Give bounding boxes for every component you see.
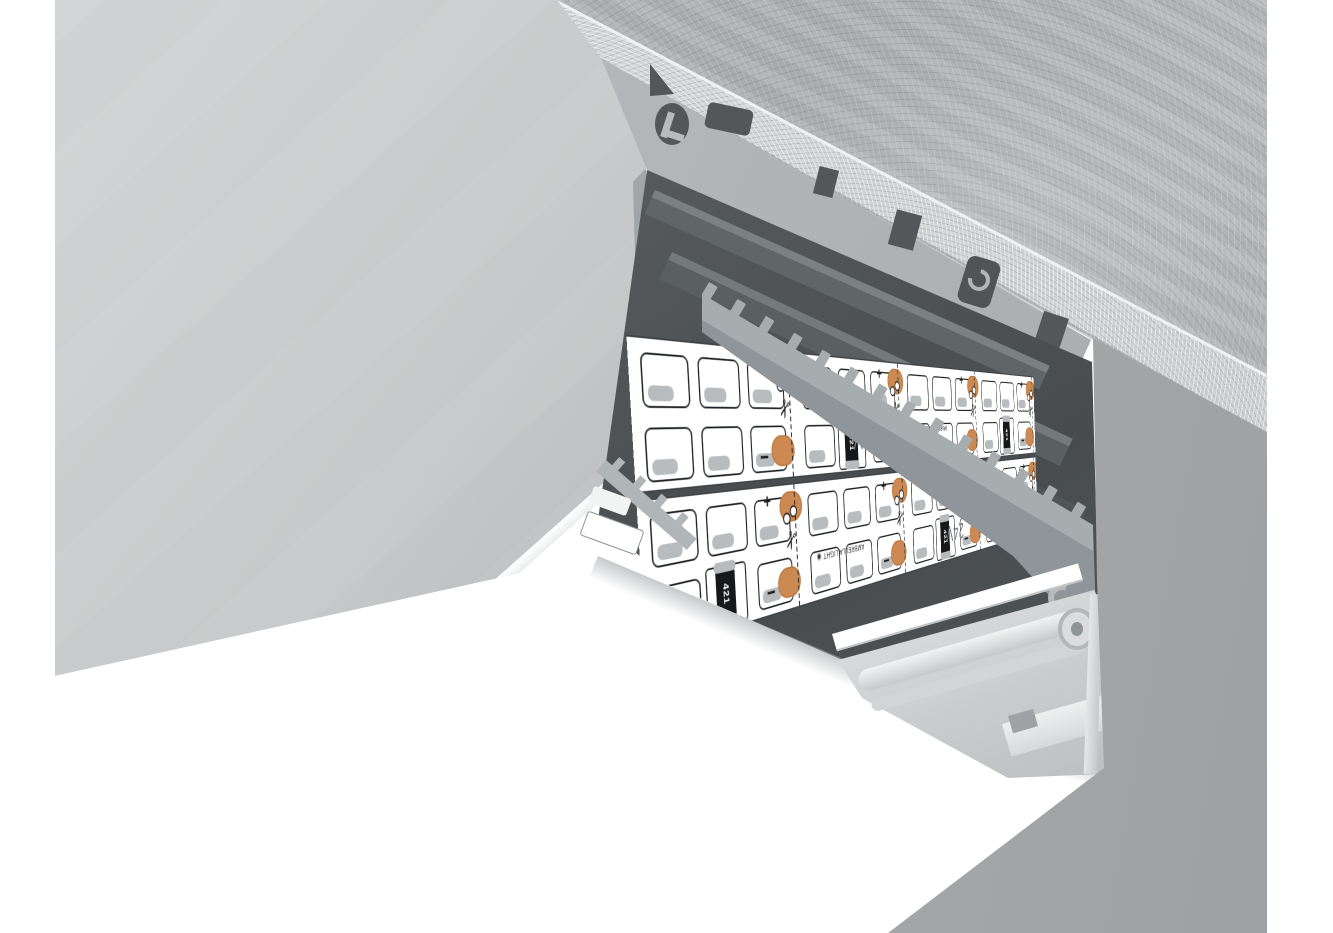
- led-shine: [1021, 482, 1028, 491]
- clip-hook-foot: [664, 129, 685, 142]
- led-package: [705, 502, 748, 558]
- fin-tooth: [611, 457, 625, 471]
- polarity-minus: −: [760, 444, 770, 471]
- screw-channel-curl: [970, 271, 988, 289]
- mount-slot: [704, 102, 754, 137]
- end-hook-curl: [1064, 636, 1097, 669]
- led-package: [807, 490, 839, 537]
- led-shine: [1004, 484, 1012, 494]
- screw-channel-hole: [956, 254, 1003, 310]
- led-package: [982, 422, 998, 453]
- near-face-ridge: [870, 639, 1087, 713]
- cut-mark-circle: [972, 386, 976, 395]
- slab-edge-highlight: [556, 0, 1268, 377]
- led-shine: [985, 440, 993, 449]
- polarity-plus: +: [763, 490, 772, 514]
- led-package: [985, 509, 1001, 543]
- led-package: [936, 475, 956, 512]
- near-face-notch: [1008, 709, 1038, 733]
- led-shine: [916, 547, 927, 560]
- polarity-minus: −: [964, 529, 969, 548]
- polarity-minus: −: [1024, 514, 1028, 531]
- led-shine: [961, 492, 970, 503]
- led-shine: [806, 391, 823, 404]
- led-package: [984, 469, 1000, 502]
- product-render-scene: ✂+−421✂+−24V✂+−AMBRELLA LIGHT◉421✂+−421✂…: [0, 0, 1333, 933]
- led-package: [911, 478, 933, 517]
- led-shine: [914, 499, 925, 511]
- polarity-minus: −: [961, 435, 966, 454]
- led-package: [999, 382, 1014, 412]
- led-package: [801, 365, 833, 410]
- brand-logo-icon: ◉: [816, 552, 821, 564]
- led-shine: [815, 573, 831, 589]
- cut-mark-circle: [1030, 390, 1033, 398]
- polarity-plus: +: [959, 372, 963, 389]
- strip-segment: 421✂+−24V: [905, 464, 983, 572]
- led-shine: [842, 393, 857, 405]
- near-face-edge: [1084, 594, 1103, 774]
- fin-tooth: [1042, 485, 1058, 503]
- led-shine: [648, 385, 675, 401]
- led-shine: [874, 394, 887, 405]
- led-package: [644, 427, 695, 483]
- clip-hook: [660, 111, 675, 138]
- led-shine: [935, 397, 945, 407]
- polarity-minus: −: [1021, 433, 1025, 449]
- led-shine: [910, 396, 922, 407]
- resistor-cap: [843, 416, 858, 425]
- polarity-minus: −: [879, 439, 886, 461]
- led-package: [907, 374, 929, 411]
- led-shine: [984, 398, 992, 407]
- end-hook-curl: [1047, 583, 1078, 614]
- near-face-body: [826, 576, 1126, 806]
- led-shine: [847, 510, 862, 524]
- resistor-cap: [1003, 448, 1011, 455]
- led-shine: [657, 541, 683, 561]
- led-shine: [937, 443, 947, 453]
- led-package: [981, 380, 997, 411]
- strip-segment: ✂+−: [626, 337, 798, 492]
- led-package: [804, 425, 836, 469]
- resistor-code: 421: [721, 582, 731, 606]
- led-package: [649, 508, 699, 569]
- led-package: [1004, 505, 1019, 537]
- resistor: 421: [1003, 420, 1011, 451]
- strip-segment: 421✂+−: [977, 372, 1035, 458]
- led-shine: [752, 389, 772, 403]
- led-strip-assembly: ✂+−421✂+−24V✂+−AMBRELLA LIGHT◉421✂+−421✂…: [626, 328, 1038, 657]
- profile-near-end-cross-section: [826, 576, 1126, 806]
- recess-wall-edge-highlight: [105, 484, 610, 933]
- led-shine: [1018, 400, 1025, 408]
- led-shine: [661, 612, 687, 634]
- polarity-minus: −: [766, 579, 776, 607]
- led-package: [701, 426, 745, 478]
- groove-notch: [813, 166, 839, 198]
- led-shine: [987, 487, 995, 497]
- led-shine: [704, 387, 727, 402]
- voltage-label: 24V: [946, 518, 965, 547]
- led-package: [654, 578, 703, 643]
- led-shine: [850, 564, 865, 579]
- groove-notch: [888, 209, 922, 251]
- profile-cut-ledge: [588, 486, 632, 517]
- polarity-plus: +: [1022, 461, 1025, 475]
- led-shine: [912, 444, 924, 455]
- led-shine: [988, 528, 996, 539]
- led-package: [843, 486, 871, 530]
- resistor-cap: [716, 613, 738, 630]
- strip-segment: ✂+−AMBRELLA LIGHT◉: [901, 364, 980, 465]
- led-package: [640, 352, 691, 408]
- spring-clip-hole: [655, 103, 689, 145]
- led-shine: [759, 525, 779, 542]
- profile-cut-ledge: [579, 511, 644, 556]
- screw-port-hole: [1071, 622, 1083, 636]
- led-shine: [812, 516, 829, 531]
- polarity-plus: +: [1020, 378, 1023, 392]
- led-package: [1002, 467, 1017, 498]
- brand-text: AMBRELLA LIGHT: [918, 424, 947, 432]
- led-shine: [879, 505, 892, 518]
- led-shine: [1006, 523, 1014, 533]
- cut-mark-circle: [783, 373, 791, 386]
- resistor: 421: [715, 566, 737, 622]
- fin-tooth: [1070, 502, 1086, 520]
- resistor-code: 421: [1005, 428, 1009, 441]
- polarity-minus: −: [883, 549, 890, 572]
- led-package: [838, 368, 867, 410]
- strip-segment: 421✂+−24V: [793, 353, 905, 476]
- brand-label: AMBRELLA LIGHT◉: [913, 424, 947, 434]
- led-shine: [708, 455, 731, 471]
- led-shine: [1002, 399, 1010, 408]
- fin-tooth: [758, 316, 774, 334]
- led-shine: [809, 450, 826, 463]
- brand-logo-icon: ◉: [913, 425, 917, 434]
- near-face-step: [1002, 694, 1115, 756]
- resistor-cap: [845, 460, 860, 470]
- led-shine: [957, 397, 967, 407]
- screw-port-tube: [1058, 608, 1096, 650]
- polarity-plus: +: [881, 477, 887, 497]
- fin-tooth: [701, 282, 717, 300]
- polarity-plus: +: [876, 364, 882, 384]
- resistor-cap: [713, 559, 735, 574]
- polarity-plus: +: [756, 353, 765, 377]
- strip-segment: ✂+−AMBRELLA LIGHT◉: [799, 472, 909, 604]
- led-package: [913, 524, 935, 564]
- led-package: [932, 376, 952, 411]
- mount-notch-triangle: [650, 64, 674, 96]
- strip-segment: 421✂+−: [636, 484, 804, 654]
- led-shine: [652, 458, 678, 475]
- led-shine: [939, 495, 949, 506]
- near-face-ridge: [856, 606, 1091, 693]
- led-package: [697, 357, 741, 409]
- voltage-label: 24V: [852, 424, 879, 455]
- strip-segment: ✂+−: [980, 457, 1038, 548]
- groove-notch: [1033, 311, 1069, 353]
- led-shine: [712, 532, 734, 550]
- resistor-cap: [941, 550, 951, 560]
- resistor-cap: [1002, 416, 1010, 422]
- cut-mark-circle: [894, 381, 899, 391]
- fin-tooth: [730, 299, 746, 317]
- polarity-plus: +: [962, 467, 966, 484]
